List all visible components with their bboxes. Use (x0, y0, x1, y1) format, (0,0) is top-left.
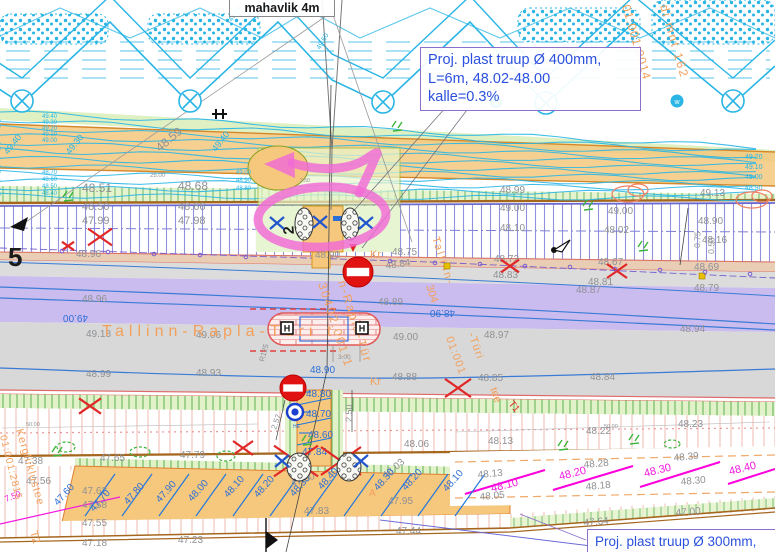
svg-text:w: w (673, 99, 680, 106)
plan-label: 48.99 (500, 185, 525, 196)
culvert-headwall-icon (287, 453, 311, 481)
plan-label: 48.90 (315, 250, 340, 261)
marker-dot (444, 263, 450, 269)
ramp-label: mahavlik 4m (244, 1, 319, 15)
plan-label: 48.89 (378, 297, 403, 308)
plan-label: 0.75 (692, 231, 703, 248)
plan-label: 25.00 (150, 173, 166, 179)
plan-label: 5 (8, 242, 22, 272)
plan-label: 48.02 (604, 225, 629, 236)
plan-label: 47.18 (82, 538, 107, 549)
plan-label: 47.99 (82, 215, 110, 227)
plan-label: 48.79 (694, 283, 719, 294)
no-entry-sign-icon (280, 375, 306, 401)
plan-label: 47.65 (100, 453, 125, 464)
plan-label: 48.28 (583, 458, 609, 471)
plan-label: 48.87 (576, 285, 601, 296)
plan-label: 48.13 (477, 468, 503, 481)
plan-label: 48.60 (308, 430, 333, 441)
bus-stop-marker: H (281, 322, 293, 334)
plan-label: 48.94 (680, 324, 705, 335)
plan-label: 48.90 (310, 365, 335, 376)
culvert-300-note-box[interactable]: Proj. plast truup Ø 300mm, (587, 529, 775, 552)
plan-label: 48.40 (42, 191, 58, 197)
circle-x-icon (11, 90, 33, 112)
plan-label: 48.80 (306, 389, 331, 400)
plan-label: 48.80 (236, 186, 252, 192)
svg-text:H: H (284, 324, 291, 334)
plan-label: 0.50 (706, 237, 717, 254)
note-line-3: kalle=0.3% (428, 88, 633, 107)
plan-label: 48.90 (430, 307, 455, 318)
plan-canvas: 48.5948.5148.6848.5048.6647.9947.9825.00… (0, 0, 775, 552)
plan-label: 48.13 (488, 436, 513, 447)
plan-label: 48.70 (306, 409, 331, 420)
plan-label: 47.55 (82, 518, 107, 529)
plan-label: 48.90 (745, 185, 763, 192)
circle-x-icon (372, 91, 394, 113)
plan-label: 49.00 (42, 138, 58, 144)
circle-x-icon (722, 90, 744, 112)
plan-label: 48.18 (585, 480, 611, 493)
plan-label: A (369, 488, 376, 499)
plan-label: 48.83 (493, 270, 518, 281)
plan-label: 48.51 (82, 181, 112, 195)
ramp-label-box[interactable]: mahavlik 4m (229, 0, 335, 17)
plan-label: 48.75 (392, 247, 417, 258)
plan-label: 49.00 (393, 332, 418, 343)
circle-w-icon: w (671, 95, 684, 108)
circle-x-icon (179, 90, 201, 112)
plan-label: 48.96 (82, 294, 107, 305)
plan-label: 49.00 (236, 170, 252, 176)
culvert-400-note-box[interactable]: Proj. plast truup Ø 400mm, L=6m, 48.02-4… (420, 47, 641, 111)
note-line-1: Proj. plast truup Ø 400mm, (428, 51, 633, 70)
plan-label: 48.90 (698, 216, 723, 227)
plan-label: 48.70 (42, 170, 58, 176)
plan-label: 2.50 (344, 404, 354, 422)
culvert-headwall-icon (341, 208, 359, 240)
plan-label: Kr (370, 249, 381, 261)
plan-label: 48.68 (178, 179, 208, 193)
plan-label: 48.93 (196, 368, 221, 379)
plan-label: 47.64 (583, 516, 609, 529)
bus-stop-marker: H (356, 322, 368, 334)
plan-label: 47.79 (180, 450, 205, 461)
plan-label: 47.23 (178, 535, 203, 546)
plan-label: HE (293, 424, 301, 430)
plan-label: 3.50 (300, 178, 310, 184)
plan-label: 48.88 (392, 372, 417, 383)
plan-label: 47.00 (675, 506, 701, 519)
note-300-text: Proj. plast truup Ø 300mm, (595, 534, 756, 549)
plan-label: 47.95 (388, 496, 413, 507)
plan-label: 48.60 (42, 177, 58, 183)
manhole-icon (287, 404, 303, 420)
plan-label: 48.90 (236, 178, 252, 184)
plan-label: 48.66 (178, 201, 206, 213)
plan-label: 48.97 (484, 330, 509, 341)
culvert-headwall-icon (295, 208, 313, 240)
plan-label: 49.20 (745, 154, 763, 161)
plan-label: 48.99 (86, 369, 111, 380)
plan-label: 48.30 (680, 475, 706, 488)
plan-label: 49.00 (63, 312, 88, 323)
plan-label: 49.00 (608, 206, 633, 217)
plan-label: Kr (370, 376, 381, 388)
plan-label: 49.10 (745, 164, 763, 171)
plan-label: 48.06 (404, 439, 429, 450)
plan-label: 48.85 (478, 373, 503, 384)
plan-label: 47.44 (396, 526, 421, 537)
plan-label: 47.98 (178, 215, 206, 227)
plan-label: 49.00 (500, 203, 525, 214)
plan-label: 48.96 (76, 249, 101, 260)
plan-label: 50.00 (604, 424, 618, 430)
svg-text:H: H (359, 324, 366, 334)
plan-label: 47.83 (304, 506, 329, 517)
plan-label: 50.00 (26, 422, 40, 428)
plan-label: 48.23 (678, 419, 703, 430)
plan-label: 48.84 (590, 372, 615, 383)
plan-label: 49.00 (745, 174, 763, 181)
plan-label: 48.39 (673, 451, 699, 464)
plan-label: 48.10 (500, 223, 525, 234)
plan-label: Tallinn-Rapla-Türi t (102, 323, 336, 340)
plan-label: 48.50 (82, 201, 110, 213)
site-plan: 48.5948.5148.6848.5048.6647.9947.9825.00… (0, 0, 775, 552)
no-entry-sign-icon (343, 257, 373, 287)
plan-label: 49.13 (700, 188, 725, 199)
note-line-2: L=6m, 48.02-48.00 (428, 70, 633, 89)
plan-label: 48.50 (42, 184, 58, 190)
